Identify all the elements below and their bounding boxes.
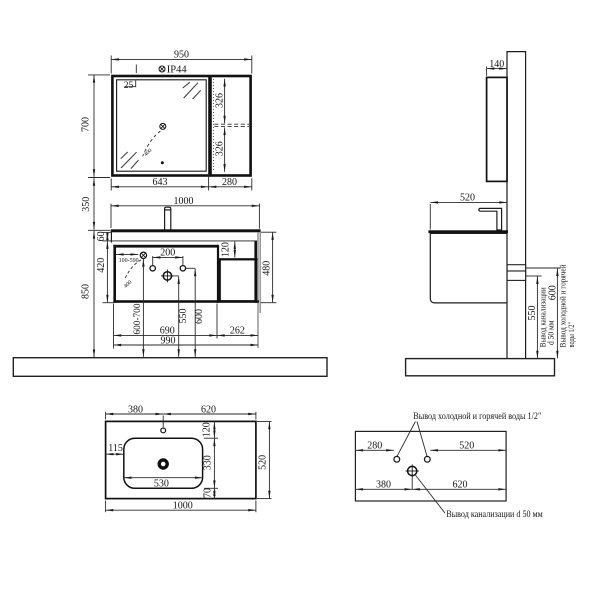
svg-text:1000: 1000 xyxy=(174,196,194,207)
svg-text:330: 330 xyxy=(203,455,214,470)
svg-text:850: 850 xyxy=(81,284,92,299)
svg-text:120: 120 xyxy=(201,422,212,437)
svg-text:280: 280 xyxy=(367,441,382,452)
svg-text:620: 620 xyxy=(453,480,468,491)
svg-text:950: 950 xyxy=(174,50,189,61)
svg-text:700: 700 xyxy=(81,117,92,132)
svg-text:60: 60 xyxy=(96,231,107,241)
svg-text:530: 530 xyxy=(154,478,169,489)
svg-text:воды 1/2": воды 1/2" xyxy=(566,322,576,348)
svg-text:280: 280 xyxy=(222,177,237,188)
svg-text:326: 326 xyxy=(214,141,225,156)
svg-text:520: 520 xyxy=(459,441,474,452)
svg-text:120: 120 xyxy=(220,242,231,257)
svg-text:520: 520 xyxy=(460,193,475,204)
svg-text:350: 350 xyxy=(81,197,92,212)
svg-text:480: 480 xyxy=(262,261,273,276)
svg-text:d 50 мм: d 50 мм xyxy=(545,320,555,345)
svg-text:IP44: IP44 xyxy=(167,65,188,76)
svg-text:1000: 1000 xyxy=(173,501,193,512)
svg-text:643: 643 xyxy=(153,177,168,188)
svg-text:140: 140 xyxy=(489,59,504,70)
svg-text:420: 420 xyxy=(96,258,107,273)
svg-text:262: 262 xyxy=(230,326,245,337)
svg-text:200: 200 xyxy=(160,248,175,259)
svg-text:Вывод канализации d 50 мм: Вывод канализации d 50 мм xyxy=(446,510,543,520)
svg-text:380: 380 xyxy=(128,404,143,415)
svg-text:25: 25 xyxy=(124,81,134,91)
svg-text:620: 620 xyxy=(201,404,216,415)
svg-text:Вывод холодной и горячей воды: Вывод холодной и горячей воды 1/2" xyxy=(413,411,541,422)
svg-text:70: 70 xyxy=(202,488,213,498)
svg-text:520: 520 xyxy=(258,455,269,470)
svg-text:100-590: 100-590 xyxy=(119,258,139,264)
svg-text:600: 600 xyxy=(194,309,205,324)
svg-text:550: 550 xyxy=(527,306,538,321)
svg-text:550: 550 xyxy=(178,309,189,324)
svg-text:600-700: 600-700 xyxy=(133,303,143,334)
svg-text:990: 990 xyxy=(161,335,176,346)
svg-text:115: 115 xyxy=(108,443,123,454)
svg-text:380: 380 xyxy=(376,480,391,491)
svg-text:326: 326 xyxy=(214,93,225,108)
